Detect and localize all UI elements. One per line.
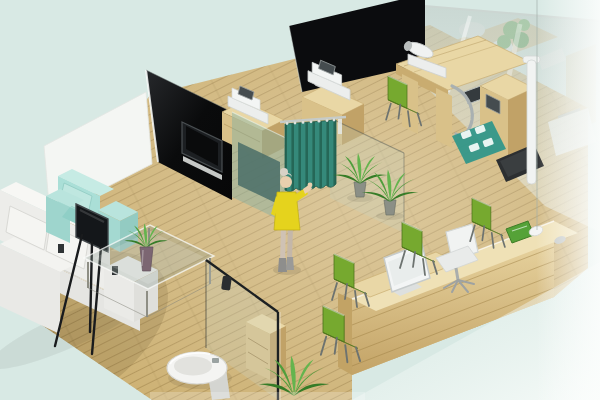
scene-canvas — [0, 0, 600, 400]
glass-fade-right — [536, 0, 600, 400]
interior-render — [0, 0, 600, 400]
